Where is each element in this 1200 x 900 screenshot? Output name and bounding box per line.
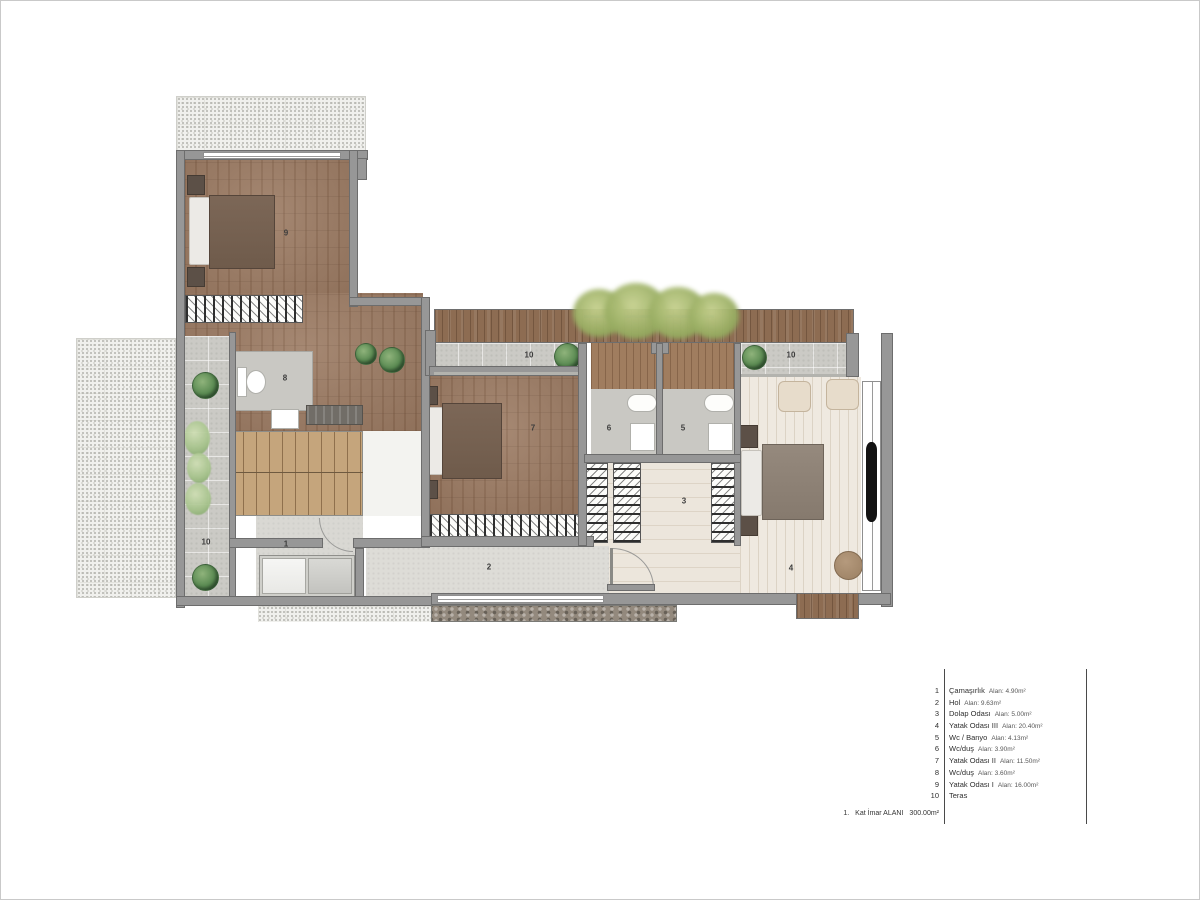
room-label-wc-banyo: 5 [681, 424, 685, 433]
terrace-left-shrub-1 [184, 421, 210, 455]
wall [881, 333, 893, 607]
terrace-left-plant-bottom [192, 564, 219, 591]
legend-row: 4Yatak Odası IIIAlan: 20.40m² [921, 721, 1086, 733]
legend-row: 5Wc / BanyoAlan: 4.13m² [921, 733, 1086, 745]
wall [176, 150, 185, 608]
staircase [229, 431, 363, 516]
terrace-right-plant [742, 345, 767, 370]
wall [846, 333, 859, 377]
bedroom3-round-pouf [834, 551, 863, 580]
legend-row: 1ÇamaşırlıkAlan: 4.90m² [921, 686, 1086, 698]
washer [262, 558, 306, 594]
terrace-left-shrub-3 [185, 483, 211, 515]
bedroom1-nightstand-top [187, 175, 205, 195]
legend-row: 7Yatak Odası IIAlan: 11.50m² [921, 756, 1086, 768]
wc6-wood-floor [591, 343, 657, 389]
hall-cabinet [306, 405, 363, 425]
wall [349, 297, 429, 306]
terrace-left-plant-top [192, 372, 219, 399]
bedroom3-tv [866, 442, 877, 522]
dryer [308, 558, 352, 594]
room-label-hall: 2 [487, 563, 491, 572]
wc6-toilet [627, 394, 657, 412]
floor-area-number: 1. [843, 810, 849, 817]
wc6-sink [630, 423, 655, 451]
terrace-left-shrub-2 [187, 453, 211, 483]
floor-area-summary: 1. Kat İmar ALANI 300.00m² [701, 810, 939, 821]
legend-divider-right [1086, 669, 1087, 824]
wall [584, 454, 741, 463]
entry-step-deck [796, 593, 859, 619]
bedroom1-wardrobe [185, 295, 303, 323]
room-label-bedroom2: 7 [531, 424, 535, 433]
closet-wardrobe-left-1 [585, 463, 608, 543]
wall [656, 343, 663, 461]
floor-area-label: Kat İmar ALANI [855, 810, 903, 817]
legend-row: 9Yatak Odası IAlan: 16.00m² [921, 780, 1086, 792]
wall [734, 343, 741, 546]
gravel-strip-bottom [258, 606, 431, 622]
wall [353, 538, 423, 548]
wc8-sink [271, 409, 299, 429]
legend-row: 6Wc/duşAlan: 3.90m² [921, 744, 1086, 756]
room-label-bedroom1: 9 [284, 229, 288, 238]
stair-mid-line [229, 472, 363, 473]
floor-area-value: 300.00m² [909, 810, 939, 817]
terrace-label-mid: 10 [525, 351, 534, 360]
wc5-toilet [704, 394, 734, 412]
room-label-wc-dus-6: 6 [607, 424, 611, 433]
wall [176, 596, 434, 606]
bedroom3-terrace-door [741, 374, 846, 377]
bedroom3-nightstand-bottom [739, 513, 758, 536]
wall [229, 538, 323, 548]
hall-plant-2 [379, 347, 405, 373]
bedroom1-bed [209, 195, 275, 269]
legend-row: 10Teras [921, 791, 1086, 803]
room-label-laundry: 1 [284, 540, 288, 549]
bedroom3-pouf-2 [826, 379, 859, 410]
bedroom3-pouf-1 [778, 381, 811, 412]
wall [355, 548, 364, 598]
floor-plan-canvas: 1 2 3 4 5 6 7 8 9 10 10 10 1ÇamaşırlıkAl… [0, 0, 1200, 900]
wall [607, 584, 655, 591]
bedroom1-window [203, 152, 341, 159]
terrace-label-left: 10 [202, 538, 211, 547]
wc8-toilet-bowl [246, 370, 266, 394]
closet-wardrobe-right [711, 463, 736, 543]
wall [349, 150, 358, 307]
bedroom2-terrace-door [434, 372, 581, 375]
bedroom3-bed [762, 444, 824, 520]
gravel-area-left [76, 338, 176, 598]
room-label-closet: 3 [682, 497, 686, 506]
stone-strip-bottom [431, 605, 677, 622]
hall-window [437, 595, 604, 603]
hall-plant-1 [355, 343, 377, 365]
bedroom2-bed [442, 403, 502, 479]
wall [229, 332, 236, 599]
bedroom3-pillows [741, 450, 762, 516]
bedroom1-nightstand-bottom [187, 267, 205, 287]
room-label-bedroom3: 4 [789, 564, 793, 573]
legend-row: 8Wc/duşAlan: 3.60m² [921, 768, 1086, 780]
legend: 1ÇamaşırlıkAlan: 4.90m² 2HolAlan: 9.63m²… [921, 686, 1086, 803]
wall [421, 536, 594, 547]
bedroom3-nightstand-top [739, 425, 758, 448]
terrace-label-right: 10 [787, 351, 796, 360]
legend-row: 2HolAlan: 9.63m² [921, 698, 1086, 710]
overhang-tree-4 [689, 293, 739, 339]
room-label-wc-dus-8: 8 [283, 374, 287, 383]
bedroom1-pillows [189, 197, 210, 265]
wc5-sink [708, 423, 733, 451]
wc5-wood-floor [663, 343, 734, 389]
closet-wardrobe-left-2 [613, 463, 641, 543]
gravel-area-top [176, 96, 366, 153]
wall [578, 343, 587, 546]
stair-landing [363, 431, 423, 516]
legend-row: 3Dolap OdasıAlan: 5.00m² [921, 709, 1086, 721]
